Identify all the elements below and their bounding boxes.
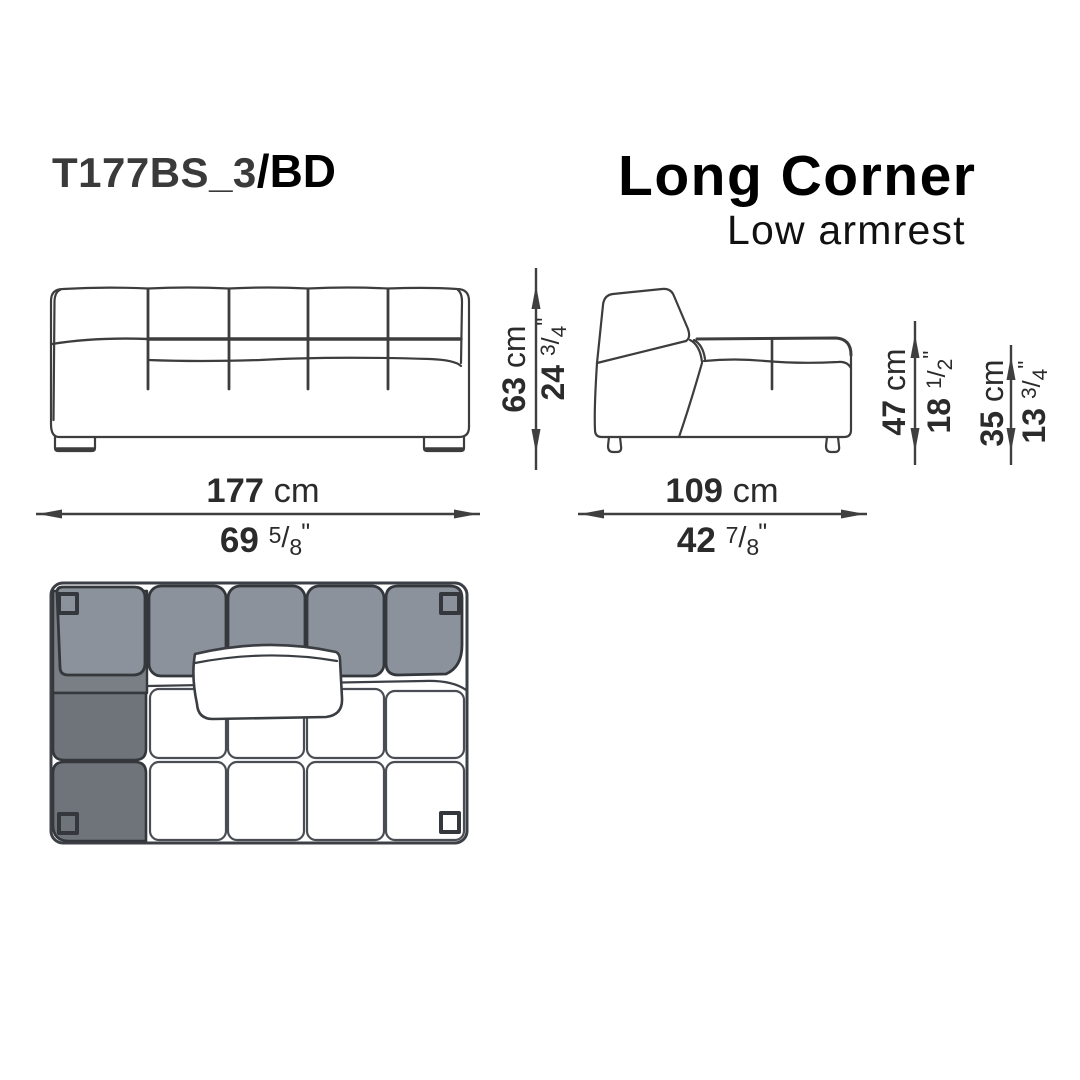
svg-text:13 3/4": 13 3/4" — [1013, 361, 1052, 444]
svg-text:35 cm: 35 cm — [974, 359, 1010, 446]
svg-text:63 cm: 63 cm — [496, 325, 532, 412]
svg-text:47 cm: 47 cm — [876, 348, 912, 435]
svg-text:109 cm: 109 cm — [665, 472, 778, 510]
svg-text:177 cm: 177 cm — [206, 472, 319, 510]
svg-text:42 7/8": 42 7/8" — [677, 519, 767, 560]
svg-text:69 5/8": 69 5/8" — [220, 519, 310, 560]
svg-text:18 1/2": 18 1/2" — [918, 351, 957, 434]
svg-text:24 3/4": 24 3/4" — [532, 318, 571, 401]
